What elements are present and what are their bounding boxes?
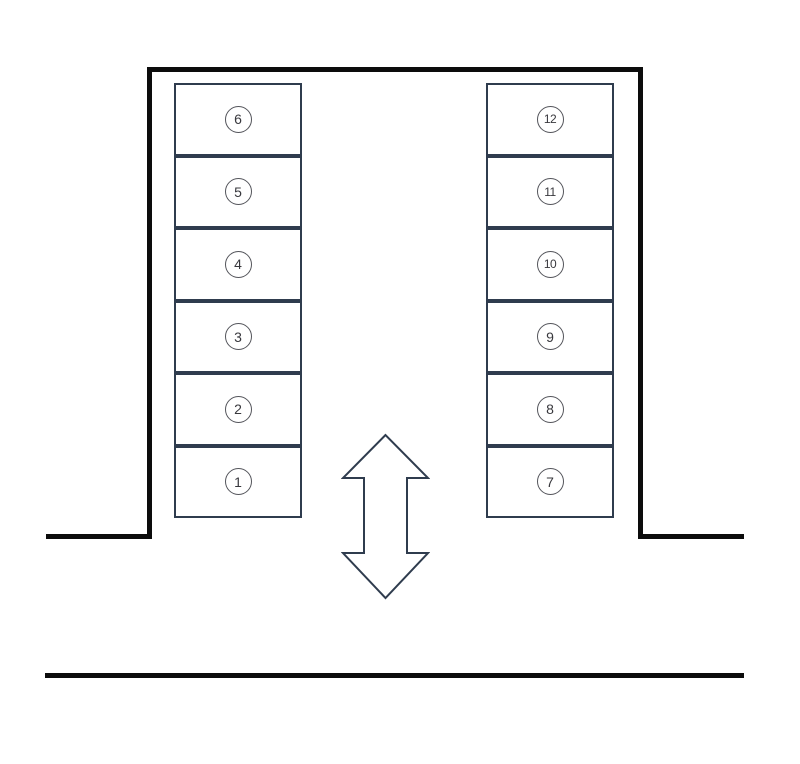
wall-top: [147, 67, 643, 72]
wall-left: [147, 67, 152, 539]
parking-stall-9: 9: [486, 301, 614, 374]
parking-stall-5: 5: [174, 156, 302, 229]
stall-number-circle: 7: [537, 468, 564, 495]
stall-number-circle: 2: [225, 396, 252, 423]
stall-number: 6: [234, 112, 242, 126]
parking-stall-2: 2: [174, 373, 302, 446]
stall-number: 2: [234, 402, 242, 416]
parking-stall-4: 4: [174, 228, 302, 301]
parking-stall-12: 12: [486, 83, 614, 156]
stall-number: 11: [544, 186, 555, 198]
stall-column-left: 6 5 4 3 2 1: [174, 83, 302, 518]
stall-number-circle: 3: [225, 323, 252, 350]
stall-number-circle: 1: [225, 468, 252, 495]
stall-number: 4: [234, 257, 242, 271]
stall-number: 5: [234, 185, 242, 199]
stall-number: 12: [544, 113, 556, 125]
wall-bottom-left-stub: [46, 534, 152, 539]
road-line: [45, 673, 744, 678]
stall-number-circle: 10: [537, 251, 564, 278]
stall-number-circle: 5: [225, 178, 252, 205]
stall-number: 7: [546, 475, 554, 489]
two-way-arrow-icon: [341, 433, 430, 600]
parking-stall-7: 7: [486, 446, 614, 519]
parking-stall-3: 3: [174, 301, 302, 374]
stall-number: 3: [234, 330, 242, 344]
parking-stall-10: 10: [486, 228, 614, 301]
stall-number-circle: 4: [225, 251, 252, 278]
stall-number-circle: 12: [537, 106, 564, 133]
wall-bottom-right-stub: [638, 534, 744, 539]
parking-layout-diagram: 6 5 4 3 2 1: [0, 0, 800, 764]
parking-stall-11: 11: [486, 156, 614, 229]
parking-stall-6: 6: [174, 83, 302, 156]
stall-number-circle: 9: [537, 323, 564, 350]
stall-number-circle: 6: [225, 106, 252, 133]
parking-stall-1: 1: [174, 446, 302, 519]
parking-stall-8: 8: [486, 373, 614, 446]
stall-number-circle: 11: [537, 178, 564, 205]
stall-number-circle: 8: [537, 396, 564, 423]
stall-number: 9: [546, 330, 554, 344]
stall-number: 10: [544, 258, 556, 270]
stall-number: 8: [546, 402, 554, 416]
wall-right: [638, 67, 643, 539]
stall-number: 1: [234, 475, 242, 489]
stall-column-right: 12 11 10 9 8 7: [486, 83, 614, 518]
